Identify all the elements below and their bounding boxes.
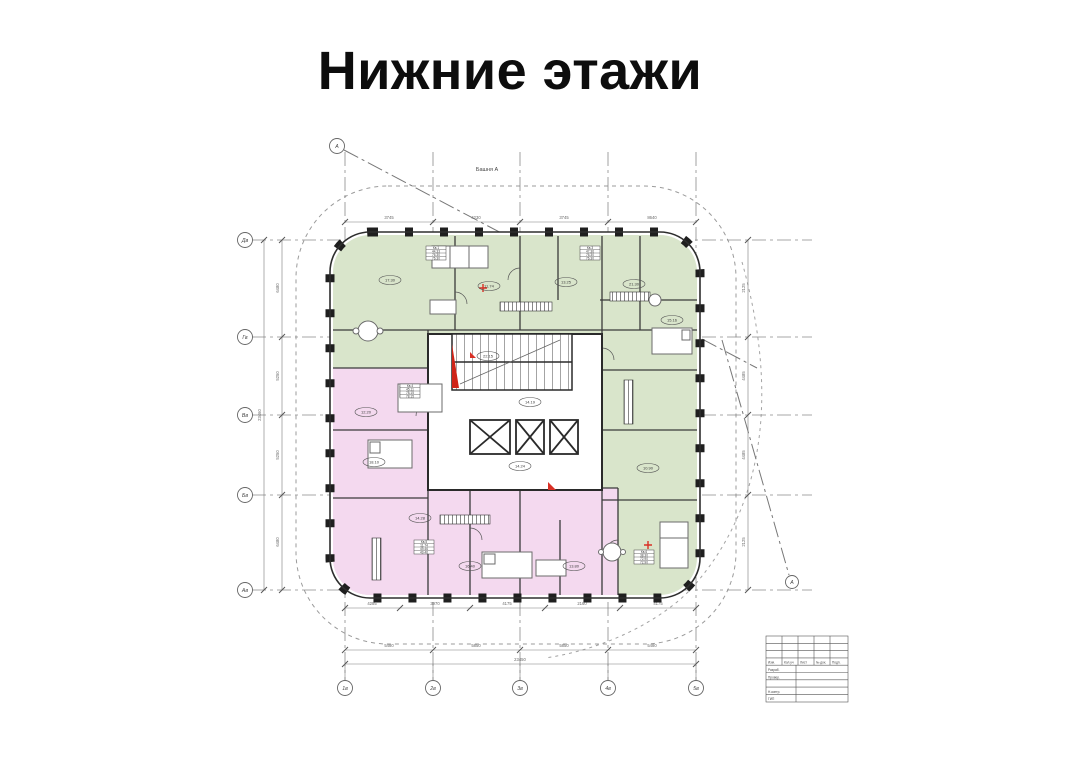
svg-text:Н.контр.: Н.контр. [768,690,780,694]
svg-text:2в: 2в [429,686,436,692]
svg-text:21.30: 21.30 [629,282,640,287]
svg-text:Провер.: Провер. [768,675,780,679]
axis-bubble-left: Вв [238,408,253,423]
svg-text:Ав: Ав [241,588,248,594]
svg-text:4230: 4230 [471,215,481,220]
svg-text:5850: 5850 [471,643,481,648]
svg-text:14.19: 14.19 [525,400,536,405]
svg-text:18.10: 18.10 [369,460,380,465]
axis-bubble-bottom: 4в [601,681,616,696]
svg-text:ГИП: ГИП [768,697,775,701]
svg-text:5250: 5250 [275,450,280,460]
svg-text:2125: 2125 [741,283,746,293]
staircase [452,334,572,390]
axis-bubble-bottom: 3в [513,681,528,696]
svg-text:23460: 23460 [257,409,262,421]
axis-bubble-left: Ав [238,583,253,598]
svg-text:Гв: Гв [242,335,248,341]
axis-bubble-bottom: 2в [426,681,441,696]
svg-text:12.20: 12.20 [361,410,372,415]
svg-text:1в: 1в [342,686,348,692]
svg-text:4485: 4485 [741,371,746,381]
svg-text:Бв: Бв [242,493,248,499]
svg-text:4175: 4175 [502,601,512,606]
elevators [470,420,578,454]
apartment-stamp: Кв.4 45.11 78.15 78.15 [400,384,420,399]
svg-text:14.28: 14.28 [415,516,426,521]
svg-text:6480: 6480 [275,537,280,547]
axis-bubble-left: Гв [238,330,253,345]
svg-text:16.40: 16.40 [465,564,476,569]
svg-text:Разраб.: Разраб. [768,668,780,672]
apartment-stamp: Кв.6 38.30 72.90 72.90 [634,550,654,565]
apartment-stamp: Кв.5 11.74 49.46 49.46 [414,540,434,555]
tower-label: Башня А [476,167,499,173]
svg-text:17.30: 17.30 [385,278,396,283]
svg-text:А: А [789,580,794,586]
svg-text:3745: 3745 [559,215,569,220]
section-marker-bubble: А [330,139,345,154]
svg-text:13.25: 13.25 [561,280,572,285]
slide: Нижние этажи [0,0,1072,768]
svg-text:76.30: 76.30 [432,256,440,260]
building [330,232,700,598]
svg-text:13.80: 13.80 [569,564,580,569]
svg-text:2125: 2125 [741,537,746,547]
section-marker-bubble: А [786,576,799,589]
svg-text:8640: 8640 [647,215,657,220]
axis-bubble-left: Дв [238,233,253,248]
svg-text:Лист: Лист [800,661,807,665]
svg-text:Вв: Вв [242,413,248,419]
axis-bubble-left: Бв [238,488,253,503]
apartment-stamp: Кв.3 47.36 76.30 76.30 [580,246,600,261]
title-block: Изм. Кол.уч Лист № док. Подп. Разраб. Пр… [766,636,848,702]
svg-text:Кол.уч: Кол.уч [784,661,794,665]
svg-text:3970: 3970 [430,601,440,606]
svg-text:72.90: 72.90 [640,560,648,564]
svg-text:Дв: Дв [241,238,249,244]
svg-text:5250: 5250 [275,371,280,381]
axis-bubble-bottom: 1в [338,681,353,696]
svg-text:5480: 5480 [647,643,657,648]
svg-text:Изм.: Изм. [768,661,775,665]
svg-text:22.15: 22.15 [483,354,494,359]
svg-text:11.74: 11.74 [484,284,494,289]
svg-text:Подп.: Подп. [832,661,841,665]
svg-text:49.46: 49.46 [420,550,428,554]
svg-text:3в: 3в [517,686,523,692]
svg-text:3745: 3745 [384,215,394,220]
svg-text:А: А [334,144,339,150]
svg-text:4485: 4485 [741,450,746,460]
axis-bubble-bottom: 5в [689,681,704,696]
svg-text:15.16: 15.16 [667,318,678,323]
svg-text:5480: 5480 [384,643,394,648]
svg-text:76.30: 76.30 [586,256,594,260]
svg-text:6480: 6480 [275,283,280,293]
svg-text:23450: 23450 [514,657,526,662]
svg-text:4в: 4в [605,686,611,692]
svg-text:10.90: 10.90 [643,466,654,471]
svg-text:5850: 5850 [559,643,569,648]
svg-text:78.15: 78.15 [406,394,414,398]
svg-text:№ док.: № док. [816,661,826,665]
svg-text:14.24: 14.24 [515,464,526,469]
apartment-stamp: Кв.1 44.33 76.30 76.30 [426,246,446,261]
floor-plan-drawing: 6480 5250 5250 6480 23460 2125 4485 4485… [0,0,1072,768]
svg-text:5в: 5в [693,686,699,692]
